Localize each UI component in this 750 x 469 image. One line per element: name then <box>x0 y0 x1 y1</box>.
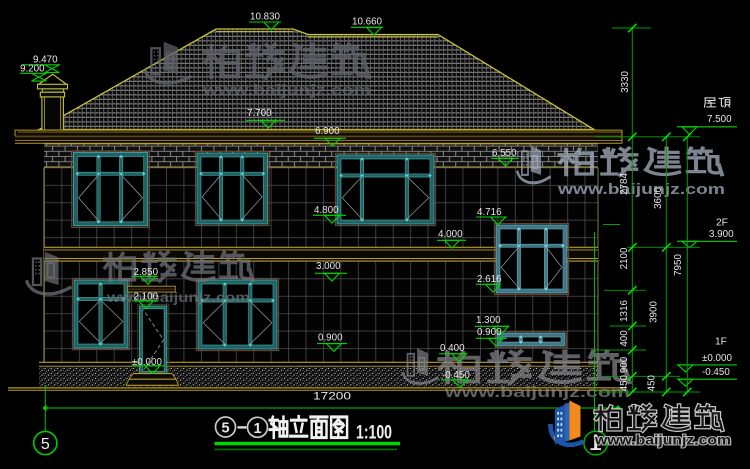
svg-text:0.900: 0.900 <box>318 333 343 344</box>
svg-text:4.800: 4.800 <box>314 205 339 216</box>
svg-text:3900: 3900 <box>648 301 659 323</box>
svg-text:1:100: 1:100 <box>356 422 392 443</box>
svg-text:6.550: 6.550 <box>492 148 517 159</box>
svg-text:17200: 17200 <box>313 391 351 403</box>
svg-text:www.baijunjz.com: www.baijunjz.com <box>202 82 371 99</box>
svg-text:1316: 1316 <box>619 300 630 322</box>
svg-text:3.000: 3.000 <box>316 261 341 272</box>
svg-text:10.830: 10.830 <box>250 12 281 23</box>
svg-text:-0.450: -0.450 <box>702 367 730 378</box>
svg-text:1: 1 <box>253 421 261 437</box>
svg-text:www.baijunjz.com: www.baijunjz.com <box>444 384 630 401</box>
svg-text:2.616: 2.616 <box>477 274 502 285</box>
svg-text:4.000: 4.000 <box>438 229 463 240</box>
svg-text:6.900: 6.900 <box>315 126 340 137</box>
svg-text:7.500: 7.500 <box>707 114 732 125</box>
svg-text:0.900: 0.900 <box>477 327 502 338</box>
svg-text:2784: 2784 <box>619 173 630 195</box>
svg-text:±0.000: ±0.000 <box>702 353 732 364</box>
svg-text:450: 450 <box>619 374 630 391</box>
svg-text:450: 450 <box>646 374 657 391</box>
svg-text:0.400: 0.400 <box>440 343 465 354</box>
svg-text:5: 5 <box>221 421 229 437</box>
svg-text:www.baijunjz.com: www.baijunjz.com <box>557 181 725 198</box>
svg-text:1.300: 1.300 <box>476 315 501 326</box>
svg-text:www.baijunjz.com: www.baijunjz.com <box>106 289 250 305</box>
svg-text:2100: 2100 <box>619 247 630 269</box>
svg-text:1F: 1F <box>715 336 727 347</box>
svg-text:3.900: 3.900 <box>709 229 734 240</box>
svg-text:7.700: 7.700 <box>247 108 272 119</box>
svg-text:5: 5 <box>41 436 50 453</box>
svg-text:900: 900 <box>619 356 630 373</box>
svg-text:3600: 3600 <box>653 187 664 209</box>
svg-text:3330: 3330 <box>620 71 631 93</box>
svg-text:7950: 7950 <box>673 254 684 276</box>
svg-text:www.baijunjz.com: www.baijunjz.com <box>594 432 731 447</box>
svg-text:10.660: 10.660 <box>352 17 383 28</box>
svg-text:400: 400 <box>619 330 630 347</box>
svg-text:2F: 2F <box>716 217 728 228</box>
